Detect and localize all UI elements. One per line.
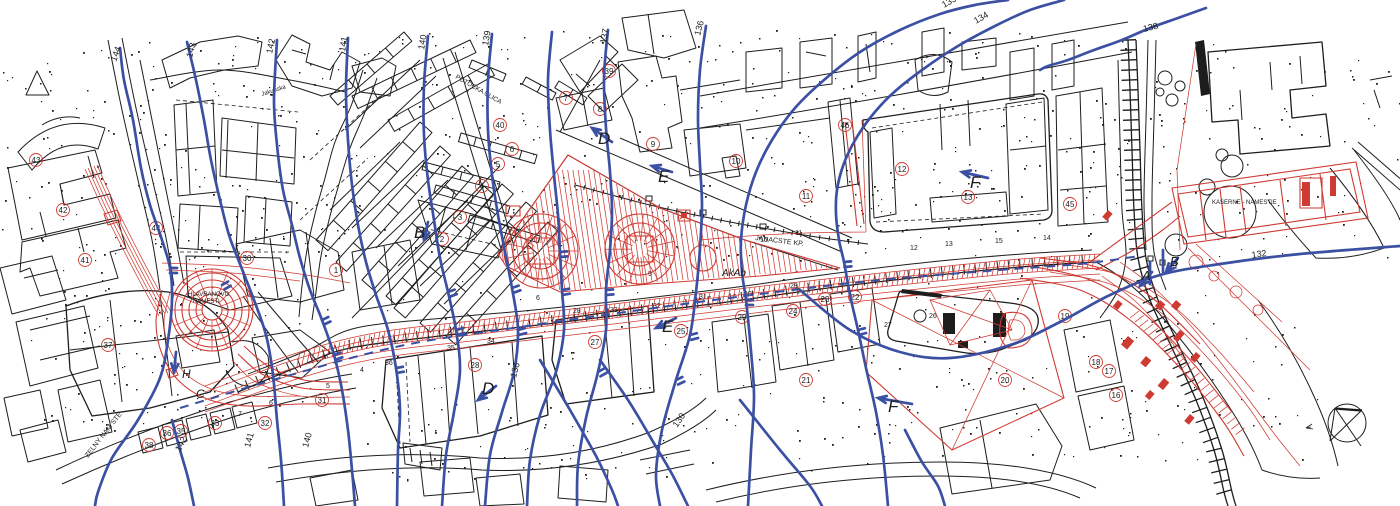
svg-text:2: 2 [440, 235, 445, 244]
svg-text:132: 132 [1251, 248, 1267, 260]
svg-text:23: 23 [821, 295, 830, 304]
svg-text:8: 8 [598, 105, 603, 114]
svg-text:36: 36 [385, 360, 393, 367]
svg-text:11: 11 [795, 230, 802, 237]
svg-text:35: 35 [177, 427, 186, 436]
svg-text:45: 45 [1066, 200, 1075, 209]
svg-text:30: 30 [243, 254, 252, 263]
svg-text:7: 7 [564, 94, 569, 103]
svg-text:28: 28 [573, 308, 581, 315]
svg-text:5: 5 [496, 160, 501, 169]
svg-text:B: B [1170, 254, 1179, 269]
svg-text:9: 9 [651, 140, 656, 149]
svg-text:6: 6 [536, 295, 540, 302]
svg-text:3: 3 [458, 213, 463, 222]
svg-text:33: 33 [211, 419, 220, 428]
svg-text:A: A [1141, 268, 1151, 283]
svg-text:41: 41 [81, 256, 90, 265]
svg-text:27: 27 [884, 322, 892, 329]
svg-text:14: 14 [1043, 235, 1051, 242]
svg-text:AkAb: AkAb [721, 268, 746, 279]
svg-text:27: 27 [591, 338, 600, 347]
svg-text:26: 26 [929, 313, 937, 320]
svg-text:13: 13 [964, 193, 973, 202]
svg-text:24: 24 [789, 307, 798, 316]
svg-text:6: 6 [510, 145, 515, 154]
svg-text:D: D [482, 379, 494, 398]
svg-text:36: 36 [163, 429, 172, 438]
svg-text:1: 1 [334, 266, 339, 275]
svg-text:35: 35 [447, 345, 455, 352]
svg-text:32: 32 [261, 419, 270, 428]
svg-text:33: 33 [610, 307, 618, 314]
svg-text:20: 20 [1001, 376, 1010, 385]
svg-text:NAMESTI: NAMESTI [193, 299, 220, 305]
svg-text:28: 28 [471, 361, 480, 370]
svg-text:40: 40 [496, 121, 505, 130]
svg-text:4: 4 [480, 182, 485, 191]
svg-text:6: 6 [269, 400, 273, 407]
svg-text:10: 10 [732, 157, 741, 166]
svg-text:39: 39 [605, 67, 614, 76]
svg-text:H: H [182, 367, 191, 381]
svg-text:17: 17 [1105, 367, 1114, 376]
svg-text:21: 21 [802, 376, 811, 385]
svg-text:12: 12 [910, 245, 918, 252]
svg-text:F: F [970, 173, 982, 192]
svg-text:E: E [658, 167, 670, 186]
svg-text:13: 13 [945, 241, 953, 248]
svg-text:18: 18 [1092, 358, 1101, 367]
svg-text:12: 12 [898, 165, 907, 174]
svg-text:9: 9 [508, 227, 512, 234]
svg-text:KASERNE - NAMESTIE: KASERNE - NAMESTIE [1212, 200, 1277, 206]
svg-text:10: 10 [760, 237, 768, 244]
svg-text:5: 5 [326, 383, 330, 390]
svg-text:29: 29 [738, 313, 747, 322]
svg-text:C: C [196, 387, 205, 401]
svg-text:31: 31 [318, 396, 327, 405]
svg-text:B: B [414, 223, 425, 242]
svg-text:11: 11 [802, 192, 811, 201]
svg-text:38: 38 [145, 441, 154, 450]
svg-text:25: 25 [677, 327, 686, 336]
svg-text:16: 16 [1112, 391, 1121, 400]
svg-text:34: 34 [487, 338, 495, 345]
svg-text:5: 5 [648, 271, 652, 278]
svg-text:D: D [598, 129, 610, 148]
svg-text:F: F [888, 397, 900, 416]
svg-text:42: 42 [59, 206, 68, 215]
svg-text:46: 46 [841, 121, 850, 130]
svg-text:37: 37 [104, 341, 113, 350]
svg-text:43: 43 [32, 156, 41, 165]
svg-text:15: 15 [995, 238, 1003, 245]
svg-text:E: E [662, 317, 674, 336]
svg-text:4: 4 [360, 367, 364, 374]
svg-text:HLAVRANOVO: HLAVRANOVO [188, 292, 230, 298]
svg-text:7: 7 [238, 411, 242, 418]
svg-text:31: 31 [699, 294, 707, 301]
